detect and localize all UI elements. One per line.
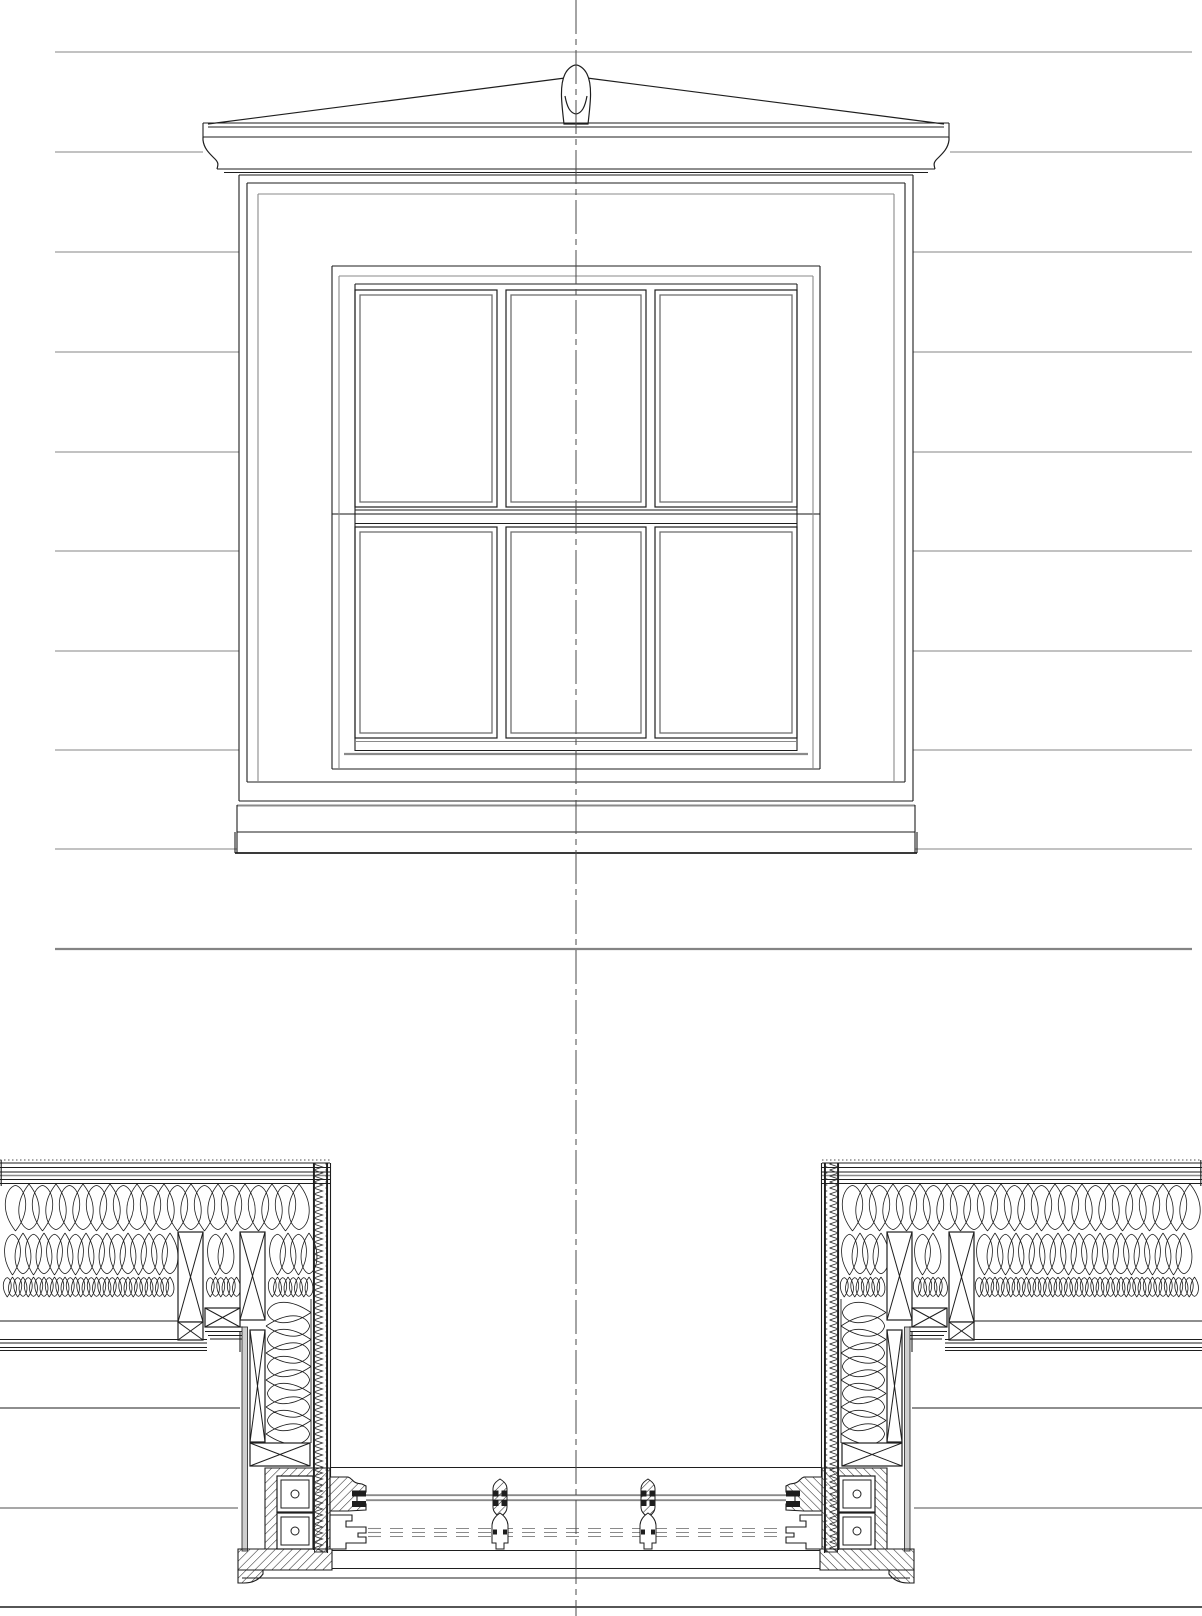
- window-detail-drawing: [0, 0, 1202, 1616]
- architectural-drawing-sheet: [0, 0, 1202, 1616]
- clapboard-siding-lines: [55, 52, 1192, 949]
- plan-section-detail: [0, 1160, 1202, 1607]
- right-jamb-assembly: [786, 1468, 914, 1583]
- left-jamb-assembly: [238, 1468, 366, 1583]
